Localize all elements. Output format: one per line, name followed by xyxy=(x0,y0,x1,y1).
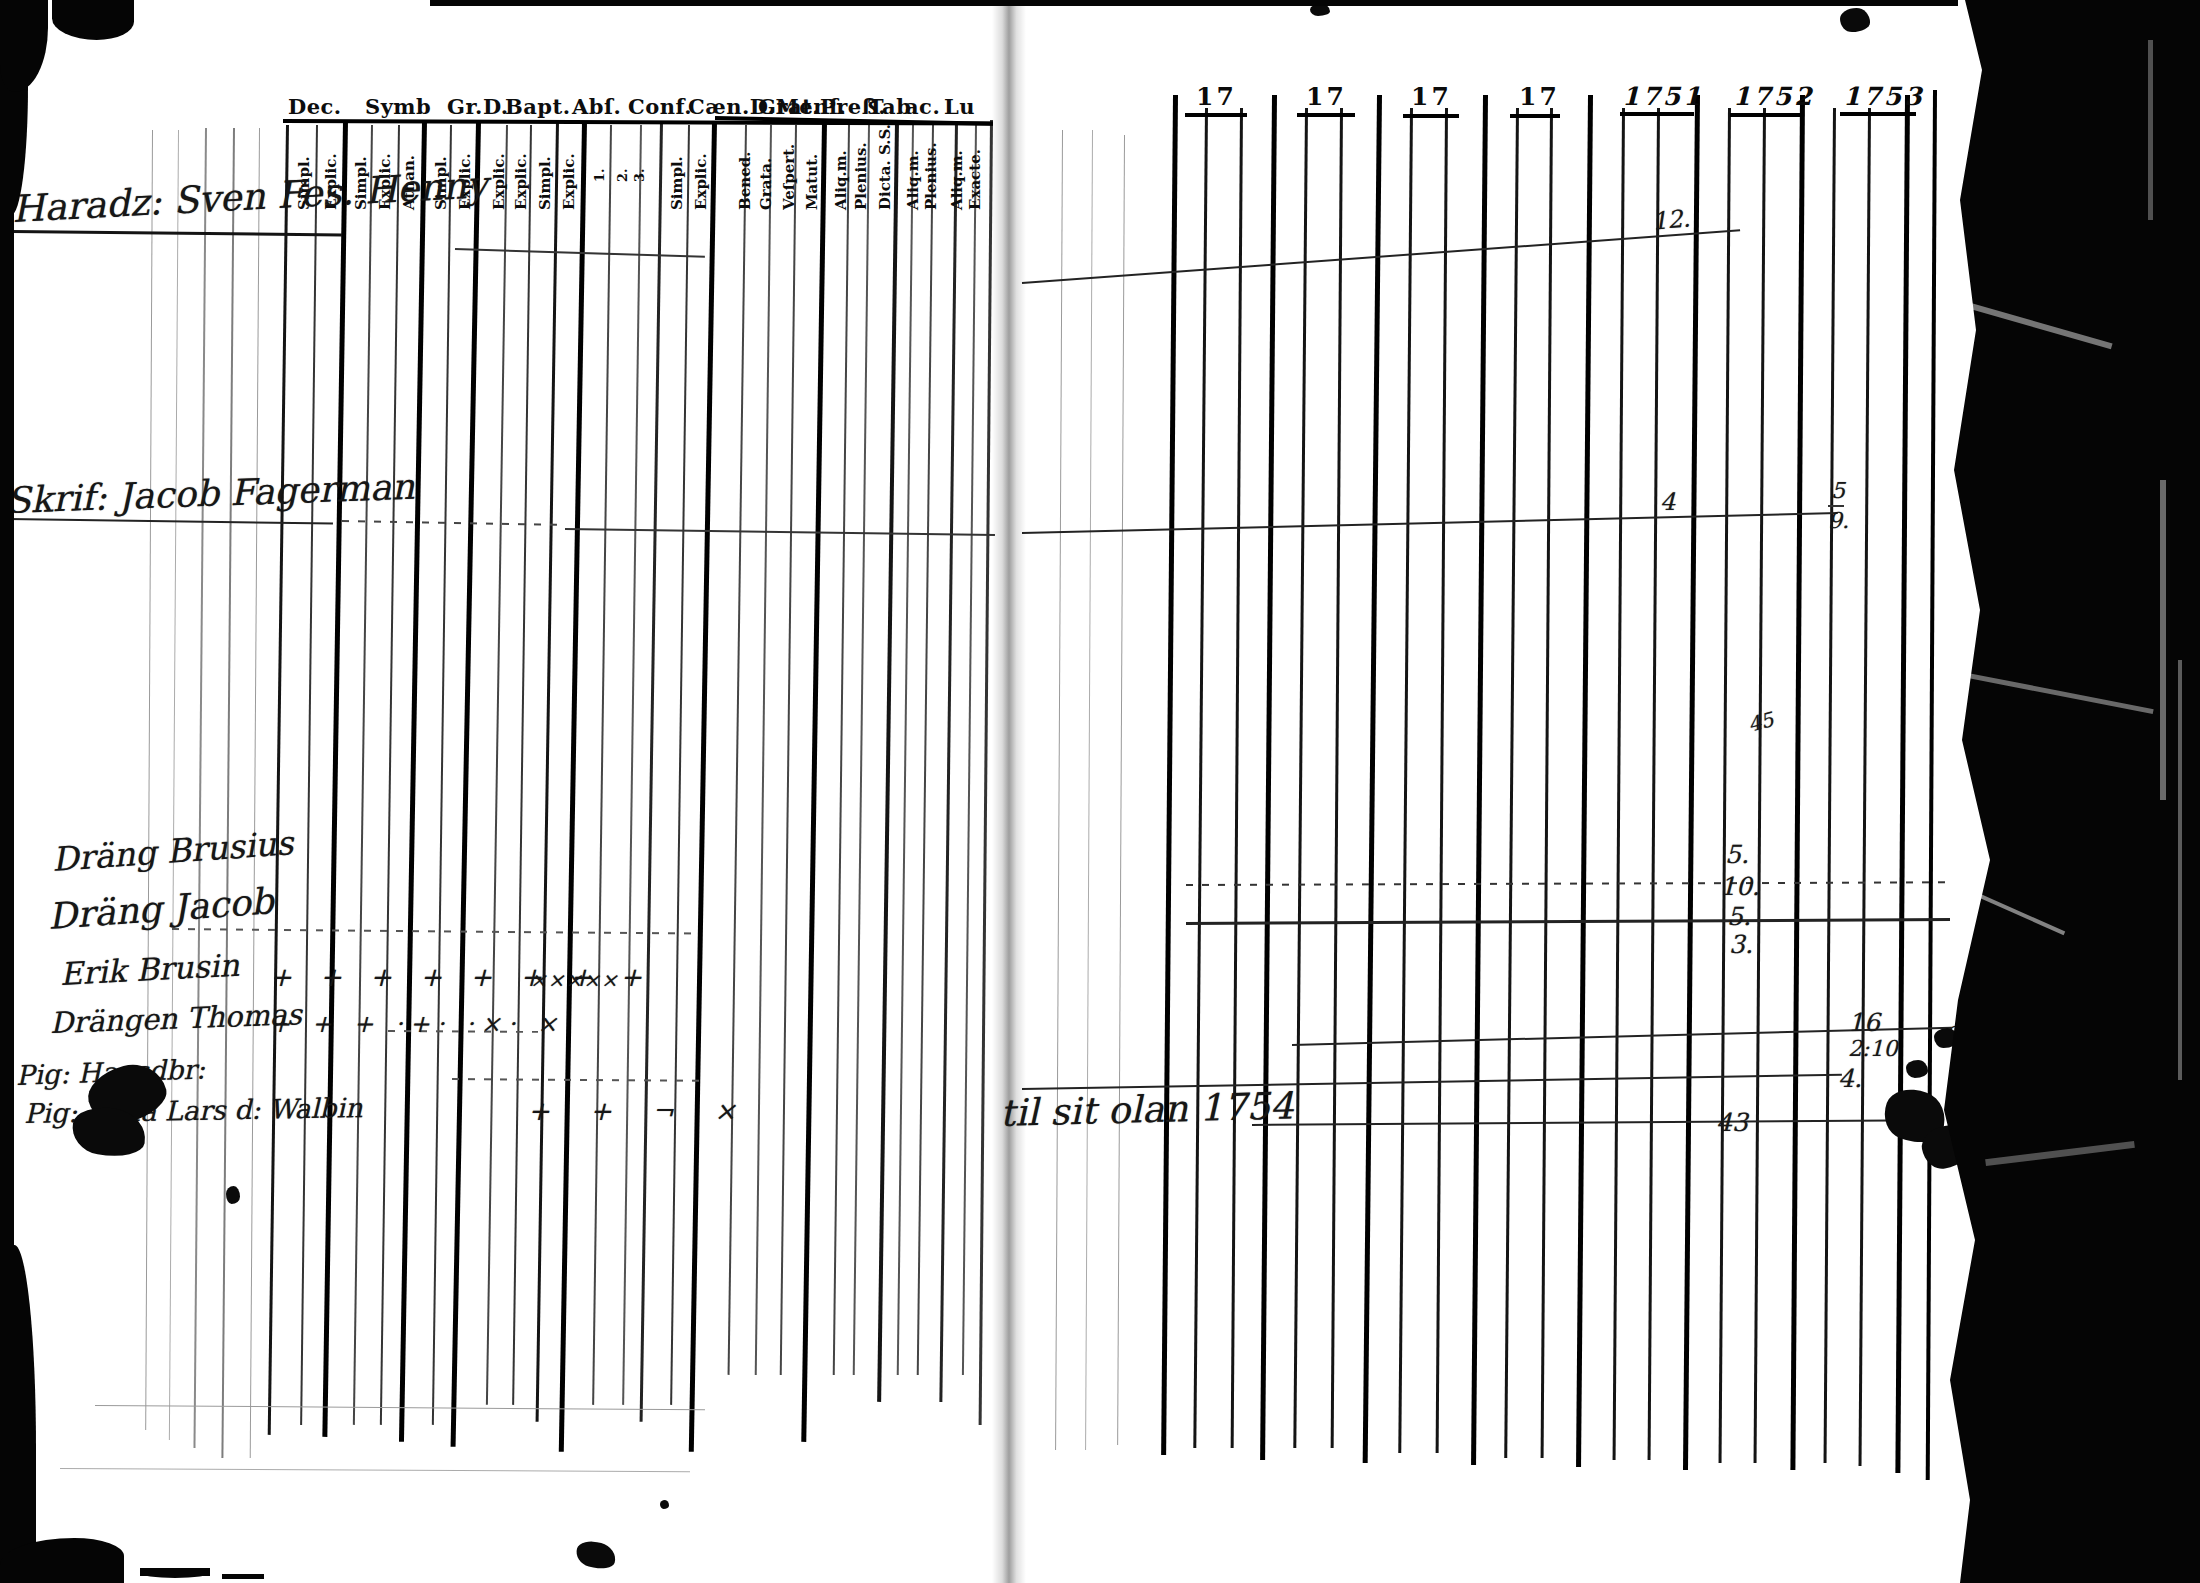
annotation-number: 45 xyxy=(1745,707,1776,737)
column-rule-line xyxy=(1260,95,1277,1460)
rule-line xyxy=(60,1468,690,1472)
column-label: Dicta. S.S. xyxy=(876,124,894,210)
binding-scratch xyxy=(2148,40,2153,220)
annotation-number: 2:10 xyxy=(1848,1036,1897,1061)
entry-name: Haradz: Sven Fes. Henny xyxy=(11,163,489,231)
column-label: 2. xyxy=(615,168,630,182)
column-label: Explic. xyxy=(560,153,578,210)
year-header: 17 xyxy=(1519,82,1560,111)
rule-line xyxy=(1828,505,1844,507)
column-rule-line xyxy=(689,122,717,1452)
ink-blot xyxy=(660,1500,669,1509)
header-symb: Symb xyxy=(365,94,431,119)
annotation-number: 16 xyxy=(1848,1008,1880,1037)
column-label: Plenius. xyxy=(852,142,870,210)
column-rule-line xyxy=(1859,108,1871,1466)
annotation-number: 12. xyxy=(1651,204,1691,235)
column-rule-line xyxy=(1055,130,1063,1450)
column-rule-line xyxy=(670,125,690,1405)
column-rule-line xyxy=(853,125,870,1375)
column-rule-line xyxy=(1790,95,1805,1470)
scan-left-edge xyxy=(0,1245,36,1583)
column-rule-line xyxy=(268,125,289,1435)
rule-line xyxy=(1185,113,1247,117)
column-rule-line xyxy=(1471,95,1488,1465)
ink-blot xyxy=(573,1537,618,1572)
page-fold xyxy=(992,0,1026,1583)
rule-line xyxy=(565,528,995,536)
column-rule-line xyxy=(512,125,532,1405)
column-rule-line xyxy=(640,122,663,1422)
column-rule-line xyxy=(1331,108,1343,1448)
column-rule-line xyxy=(432,125,452,1425)
column-label: Grata. xyxy=(757,158,775,210)
column-rule-line xyxy=(592,125,612,1405)
column-rule-line xyxy=(322,122,348,1437)
year-header: 17 xyxy=(1196,82,1237,111)
header-gr-d: Gr.D. xyxy=(447,94,509,119)
annotation-number: 5. xyxy=(1727,902,1751,931)
column-rule-line xyxy=(1824,108,1836,1463)
entry-name: Skrif: Jacob Fagerman xyxy=(5,466,415,521)
column-rule-line xyxy=(451,122,481,1447)
column-rule-line xyxy=(979,120,993,1425)
column-rule-line xyxy=(801,122,827,1442)
column-rule-line xyxy=(399,122,427,1442)
annotation-number: 3. xyxy=(1729,930,1753,959)
annotation-number: 5 xyxy=(1831,478,1845,503)
column-rule-line xyxy=(559,122,587,1452)
year-header: 1751 xyxy=(1622,82,1704,111)
annotation-number: 43 xyxy=(1716,1108,1748,1137)
margin-note: til sit olan 1754 xyxy=(999,1084,1294,1135)
header-bapt: Bapt. xyxy=(505,94,571,119)
column-label: Aliq.m. xyxy=(832,150,850,210)
book-binding xyxy=(1920,0,2200,1583)
column-rule-line xyxy=(897,125,914,1375)
annotation-number: 10. xyxy=(1720,872,1760,901)
column-rule-line xyxy=(962,125,977,1375)
column-rule-line xyxy=(1926,90,1937,1480)
rule-line xyxy=(1022,229,1740,284)
rule-line xyxy=(452,1078,702,1082)
column-rule-line xyxy=(833,125,850,1375)
column-rule-line xyxy=(169,130,179,1440)
column-label: Aliq.m. xyxy=(904,150,922,210)
entry-name: Drängen Thomas xyxy=(49,997,302,1040)
column-label: Simpl. xyxy=(668,156,686,210)
column-rule-line xyxy=(877,122,899,1402)
entry-name: Dräng Brusius xyxy=(51,823,295,879)
column-rule-line xyxy=(250,128,260,1458)
binding-scratch xyxy=(2160,480,2166,800)
year-header: 1752 xyxy=(1733,82,1815,111)
column-rule-line xyxy=(1193,108,1208,1448)
rule-line xyxy=(172,928,700,935)
column-label: Matut. xyxy=(803,154,821,210)
annotation-number: 9. xyxy=(1828,508,1849,533)
column-label: Plenius. xyxy=(922,142,940,210)
column-rule-line xyxy=(728,125,747,1375)
column-rule-line xyxy=(1576,95,1593,1467)
header-ac: ac. xyxy=(905,94,940,119)
column-rule-line xyxy=(380,125,400,1425)
column-rule-line xyxy=(353,125,373,1425)
header-lu: Lu xyxy=(944,94,975,119)
column-rule-line xyxy=(486,125,508,1405)
column-label: Simpl. xyxy=(536,156,554,210)
annotation-number: 4 xyxy=(1660,488,1675,516)
scan-bottom-mark xyxy=(140,1568,210,1578)
header-grat: Grat. xyxy=(758,94,820,119)
column-rule-line xyxy=(221,128,235,1458)
entry-marks: + + + ·+· ·×· × xyxy=(270,1010,564,1038)
column-rule-line xyxy=(622,125,642,1405)
column-rule-line xyxy=(1504,108,1519,1458)
column-label: Exacte. xyxy=(966,149,984,210)
column-label: Aliq.m. xyxy=(948,150,966,210)
column-rule-line xyxy=(1231,108,1243,1448)
column-rule-line xyxy=(1648,108,1660,1460)
rule-line xyxy=(1620,112,1694,116)
column-label: 3. xyxy=(632,168,647,182)
column-rule-line xyxy=(1117,135,1125,1445)
ink-blot xyxy=(1906,1060,1928,1078)
column-rule-line xyxy=(300,125,318,1425)
rule-line xyxy=(1403,114,1459,118)
rule-line xyxy=(1510,114,1560,118)
column-rule-line xyxy=(1363,95,1382,1463)
rule-line xyxy=(1730,113,1802,117)
scan-corner-mark xyxy=(52,0,134,40)
entry-marks: + + ¬ × xyxy=(528,1096,752,1126)
rule-line xyxy=(222,1574,264,1579)
year-header: 17 xyxy=(1306,82,1347,111)
column-rule-line xyxy=(1085,130,1093,1450)
column-rule-line xyxy=(1613,108,1625,1460)
ink-blot xyxy=(1840,8,1870,32)
rule-line xyxy=(1022,512,1838,534)
column-label: 1. xyxy=(592,168,607,182)
column-label: Bened. xyxy=(736,152,754,210)
register-scan: Dec. Symb Gr.D. Bapt. Abſ. Conf. Cæn.D.M… xyxy=(0,0,2200,1583)
ink-blot xyxy=(226,1186,240,1204)
binding-scratch xyxy=(2178,660,2182,1080)
column-rule-line xyxy=(1398,108,1413,1453)
annotation-number: 5. xyxy=(1725,840,1749,869)
column-rule-line xyxy=(755,125,772,1375)
rule-line xyxy=(1297,113,1355,117)
entry-marks: ××××× xyxy=(530,968,619,992)
column-rule-line xyxy=(1754,108,1766,1463)
column-label: Explic. xyxy=(692,153,710,210)
column-rule-line xyxy=(193,128,207,1448)
column-rule-line xyxy=(939,122,958,1402)
year-header: 1753 xyxy=(1843,82,1925,111)
scan-top-edge xyxy=(430,0,1958,6)
column-rule-line xyxy=(780,125,797,1375)
scan-corner-mark xyxy=(0,0,48,92)
annotation-number: 4. xyxy=(1838,1064,1862,1093)
column-rule-line xyxy=(1895,95,1910,1473)
column-label: Veſpert. xyxy=(780,144,798,210)
year-header: 17 xyxy=(1411,82,1452,111)
column-label: Explic. xyxy=(512,153,530,210)
column-rule-line xyxy=(1541,108,1553,1458)
column-rule-line xyxy=(1161,95,1178,1455)
column-rule-line xyxy=(145,130,153,1430)
column-rule-line xyxy=(1293,108,1308,1448)
column-rule-line xyxy=(536,122,559,1422)
entry-name: Erik Brusin xyxy=(59,947,240,992)
header-conf: Conf. xyxy=(628,94,692,119)
column-rule-line xyxy=(1683,95,1700,1470)
rule-line xyxy=(1840,112,1916,116)
header-dec: Dec. xyxy=(288,94,342,119)
header-abs: Abſ. xyxy=(572,94,621,119)
column-label: Explic. xyxy=(490,153,508,210)
column-rule-line xyxy=(1436,108,1448,1453)
column-rule-line xyxy=(917,125,934,1375)
column-rule-line xyxy=(1719,108,1731,1463)
